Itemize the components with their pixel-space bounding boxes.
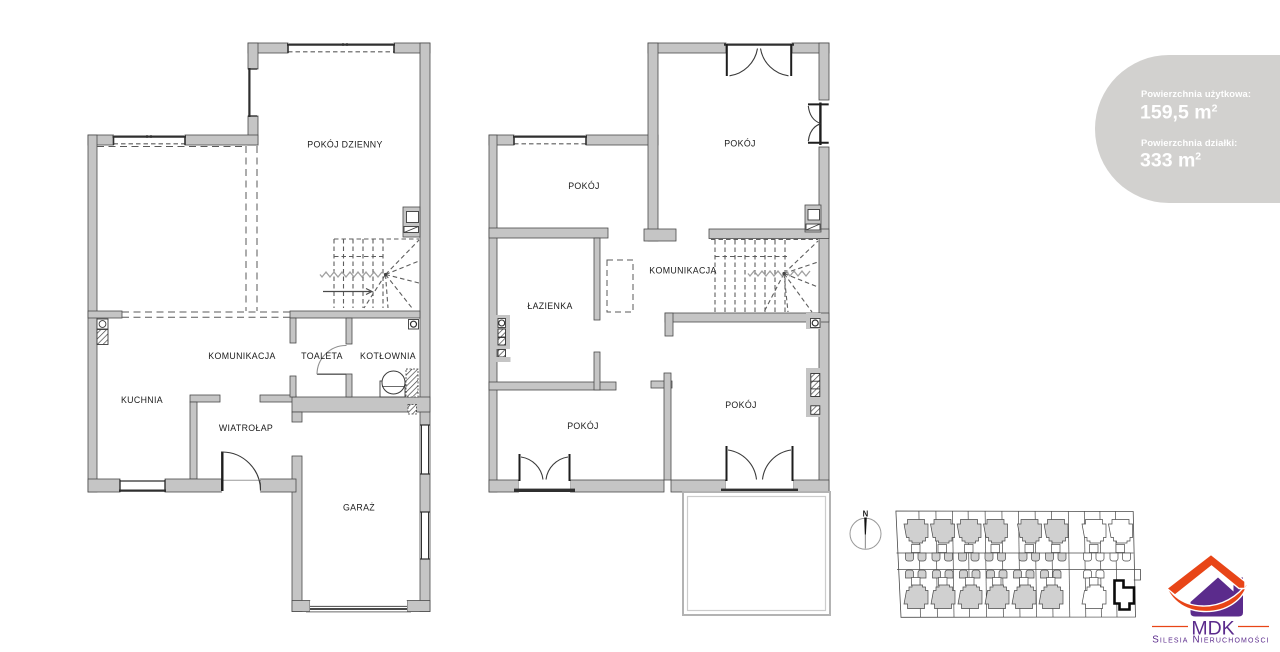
svg-text:333 m2: 333 m2 [1140,150,1201,172]
svg-text:Powierzchnia działki:: Powierzchnia działki: [1141,137,1237,148]
svg-text:POKÓJ: POKÓJ [724,139,756,149]
svg-text:KOMUNIKACJA: KOMUNIKACJA [649,266,716,276]
svg-text:159,5 m2: 159,5 m2 [1140,102,1218,124]
svg-text:N: N [863,510,869,519]
svg-text:KOMUNIKACJA: KOMUNIKACJA [208,351,275,361]
svg-text:GARAŻ: GARAŻ [343,503,375,513]
svg-text:POKÓJ: POKÓJ [567,421,599,431]
svg-text:TOALETA: TOALETA [301,351,343,361]
svg-text:POKÓJ DZIENNY: POKÓJ DZIENNY [307,140,382,150]
svg-text:KOTŁOWNIA: KOTŁOWNIA [360,351,416,361]
svg-text:KUCHNIA: KUCHNIA [121,395,163,405]
svg-text:WIATROŁAP: WIATROŁAP [219,423,273,433]
svg-text:POKÓJ: POKÓJ [725,400,757,410]
svg-text:Powierzchnia użytkowa:: Powierzchnia użytkowa: [1141,88,1251,99]
svg-text:Silesia Nieruchomości: Silesia Nieruchomości [1152,635,1270,646]
svg-text:POKÓJ: POKÓJ [568,181,600,191]
svg-text:ŁAZIENKA: ŁAZIENKA [527,301,572,311]
